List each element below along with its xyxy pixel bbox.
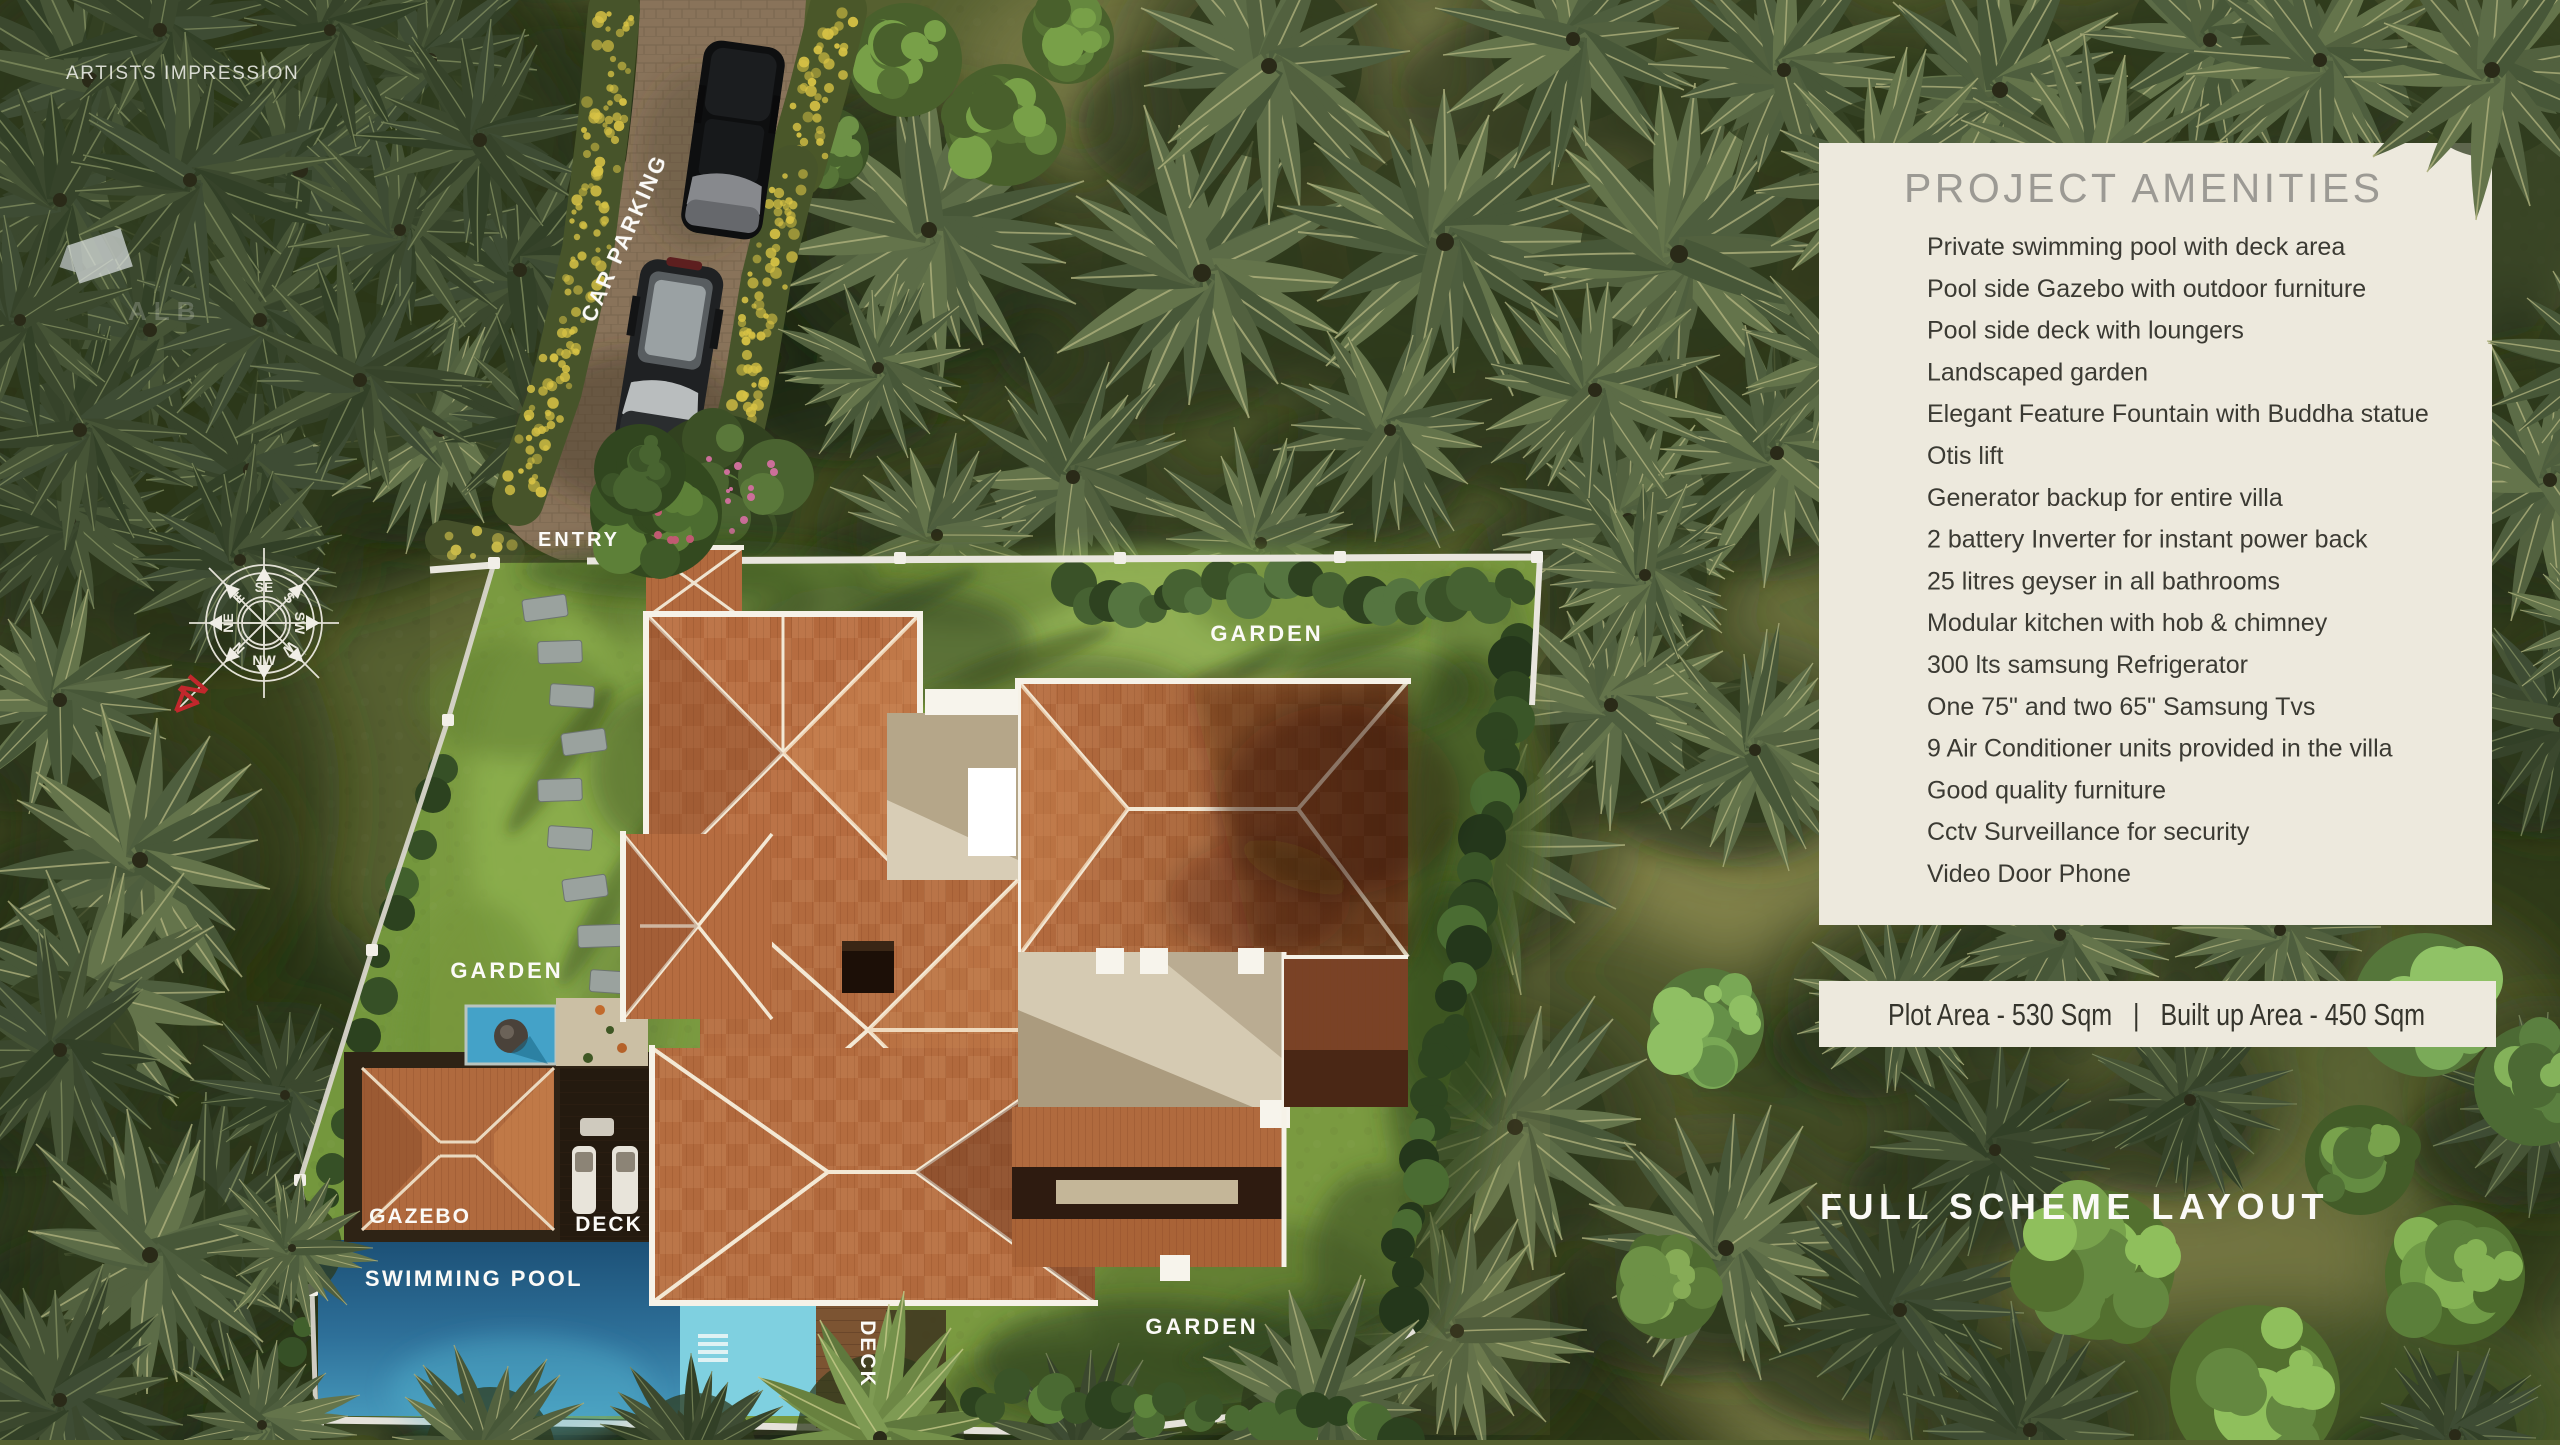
svg-text:GARDEN: GARDEN — [1145, 1314, 1258, 1339]
svg-text:Video Door Phone: Video Door Phone — [1927, 860, 2131, 888]
svg-text:SWIMMING POOL: SWIMMING POOL — [365, 1266, 583, 1291]
svg-text:Elegant Feature Fountain with: Elegant Feature Fountain with Buddha sta… — [1927, 400, 2429, 428]
svg-text:ARTISTS IMPRESSION: ARTISTS IMPRESSION — [66, 63, 299, 84]
svg-text:DECK: DECK — [856, 1320, 879, 1388]
svg-text:Good quality furniture: Good quality furniture — [1927, 776, 2166, 804]
svg-text:ENTRY: ENTRY — [538, 529, 620, 551]
svg-text:2 battery Inverter for instant: 2 battery Inverter for instant power bac… — [1927, 526, 2368, 554]
svg-text:Cctv Surveillance for security: Cctv Surveillance for security — [1927, 818, 2250, 846]
svg-text:Landscaped garden: Landscaped garden — [1927, 358, 2148, 386]
svg-text:Pool side Gazebo with outdoor: Pool side Gazebo with outdoor furniture — [1927, 275, 2366, 303]
svg-text:SW: SW — [292, 612, 308, 635]
svg-text:300 lts samsung Refrigerator: 300 lts samsung Refrigerator — [1927, 651, 2248, 679]
svg-text:NE: NE — [220, 613, 236, 632]
svg-text:Generator backup for entire vi: Generator backup for entire villa — [1927, 484, 2283, 512]
svg-text:DECK: DECK — [575, 1213, 643, 1236]
svg-text:Pool side deck with loungers: Pool side deck with loungers — [1927, 317, 2244, 345]
svg-text:One 75" and two 65" Samsung Tv: One 75" and two 65" Samsung Tvs — [1927, 693, 2315, 721]
svg-text:Private swimming pool with dec: Private swimming pool with deck area — [1927, 233, 2345, 261]
svg-text:GARDEN: GARDEN — [1210, 621, 1323, 646]
svg-text:Plot Area - 530 Sqm | Buil: Plot Area - 530 Sqm | Built up Area - 45… — [1888, 997, 2425, 1032]
svg-text:GAZEBO: GAZEBO — [369, 1205, 471, 1228]
svg-text:9 Air Conditioner units provid: 9 Air Conditioner units provided in the … — [1927, 735, 2393, 763]
svg-text:GARDEN: GARDEN — [450, 958, 563, 983]
svg-text:25 litres geyser in all bathro: 25 litres geyser in all bathrooms — [1927, 567, 2280, 595]
svg-text:Otis lift: Otis lift — [1927, 442, 2003, 470]
svg-text:ALB: ALB — [128, 296, 202, 326]
svg-text:Modular kitchen with hob & chi: Modular kitchen with hob & chimney — [1927, 609, 2328, 637]
svg-text:PROJECT AMENITIES: PROJECT AMENITIES — [1904, 165, 2380, 211]
svg-text:NW: NW — [252, 652, 276, 668]
svg-text:FULL SCHEME LAYOUT: FULL SCHEME LAYOUT — [1820, 1186, 2329, 1227]
svg-text:SE: SE — [255, 579, 274, 595]
